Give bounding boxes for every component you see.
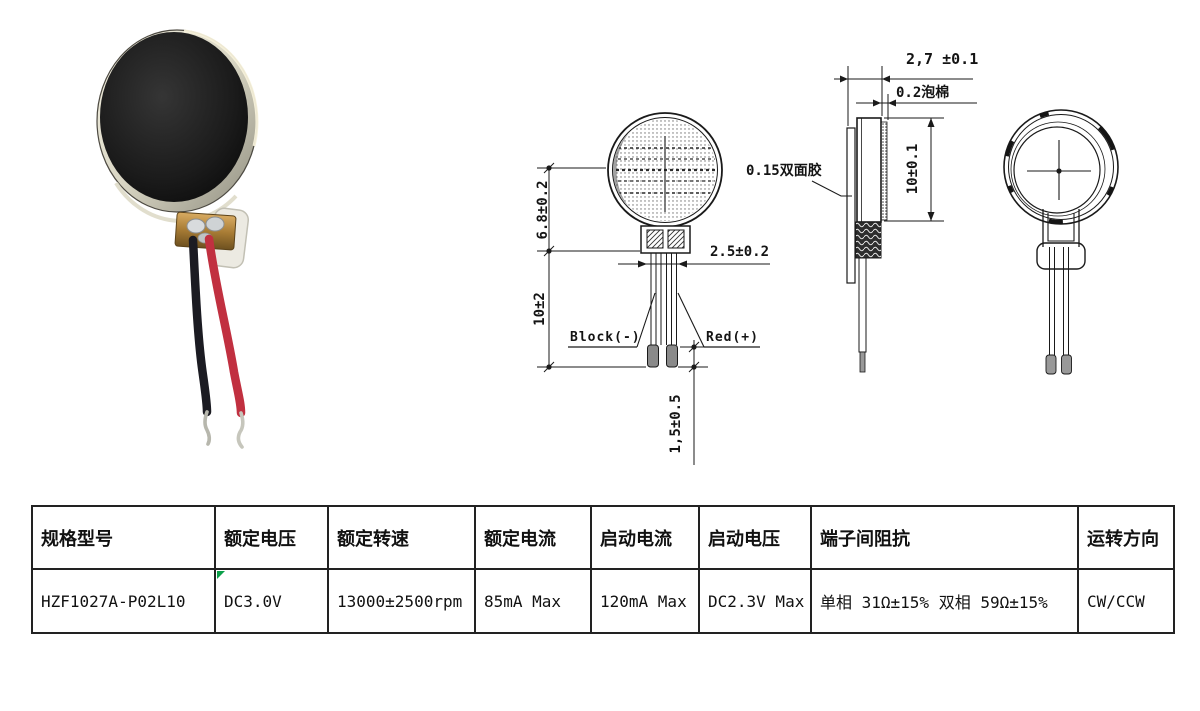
value-start-voltage: DC2.3V Max [699,569,811,633]
dim-label-tip-length: 1,5±0.5 [668,394,684,453]
adhesive-strip [881,122,887,220]
value-rated-current: 85mA Max [475,569,591,633]
dim-label-body-height: 6.8±0.2 [535,180,551,239]
header-start-voltage: 启动电压 [699,506,811,569]
value-rated-voltage: DC3.0V [215,569,328,633]
spec-table-header-row: 规格型号 额定电压 额定转速 额定电流 启动电流 启动电压 端子间阻抗 运转方向 [32,506,1174,569]
black-lead-label: Block(-) [570,330,641,345]
header-rated-speed: 额定转速 [328,506,475,569]
front-view-drawing [537,113,770,465]
back-view-drawing [984,90,1137,374]
bare-tip-right [667,345,678,367]
spec-table-value-row: HZF1027A-P02L10 DC3.0V 13000±2500rpm 85m… [32,569,1174,633]
header-model: 规格型号 [32,506,215,569]
value-start-current: 120mA Max [591,569,699,633]
dim-label-terminal-width: 2.5±0.2 [710,244,769,260]
product-photo [97,30,257,447]
shaft-center [1056,168,1061,173]
adhesive-label: 0.15双面胶 [746,160,822,180]
spec-table: 规格型号 额定电压 额定转速 额定电流 启动电流 启动电压 端子间阻抗 运转方向… [31,505,1175,634]
foam-label: 0.2泡棉 [896,82,949,102]
header-rotation-direction: 运转方向 [1078,506,1174,569]
cell-comment-marker [217,571,225,579]
drawings-canvas [0,0,1200,500]
dim-label-lead-length: 10±2 [532,292,548,326]
black-lead-wire [193,240,207,412]
header-rated-current: 额定电流 [475,506,591,569]
value-rated-speed: 13000±2500rpm [328,569,475,633]
black-lead-tip [205,412,209,444]
header-terminal-impedance: 端子间阻抗 [811,506,1078,569]
header-rated-voltage: 额定电压 [215,506,328,569]
header-start-current: 启动电流 [591,506,699,569]
bare-tip-left [648,345,659,367]
dim-label-thickness: 2,7 ±0.1 [906,50,978,68]
value-rotation-direction: CW/CCW [1078,569,1174,633]
red-lead-tip [238,413,242,447]
red-lead-label: Red(+) [706,330,759,345]
side-view-drawing [812,66,977,372]
value-terminal-impedance: 单相 31Ω±15% 双相 59Ω±15% [811,569,1078,633]
dim-label-diameter: 10±0.1 [905,144,921,195]
spec-sheet-page: 6.8±0.2 10±2 2.5±0.2 Block(-) Red(+) 1,5… [0,0,1200,711]
value-model: HZF1027A-P02L10 [32,569,215,633]
